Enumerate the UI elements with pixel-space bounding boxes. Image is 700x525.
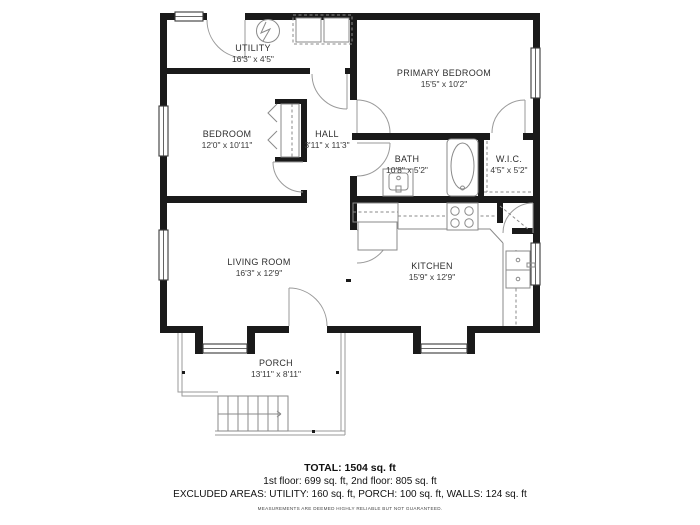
- room-label-porch: PORCH13'11" x 8'11": [251, 358, 301, 380]
- window-living-left: [159, 230, 168, 280]
- floor-areas-text: 1st floor: 699 sq. ft, 2nd floor: 805 sq…: [0, 475, 700, 488]
- room-label-bath: BATH10'8" x 5'2": [386, 154, 428, 176]
- room-dims: 13'11" x 8'11": [251, 369, 301, 380]
- room-label-kitchen: KITCHEN15'9" x 12'9": [409, 261, 456, 283]
- door-primary-bedroom: [357, 100, 390, 133]
- floorplan-page: UTILITY16'3" x 4'5" PRIMARY BEDROOM15'5"…: [0, 0, 700, 525]
- door-front-entry: [289, 288, 327, 326]
- fridge-icon: [353, 203, 398, 250]
- room-label-hall: HALL3'11" x 11'3": [304, 129, 349, 151]
- window-primary-right: [531, 48, 540, 98]
- room-name: UTILITY: [235, 43, 271, 54]
- room-name: HALL: [315, 129, 339, 140]
- door-wic: [492, 100, 525, 133]
- room-dims: 3'11" x 11'3": [304, 140, 349, 151]
- room-label-utility: UTILITY16'3" x 4'5": [232, 43, 274, 65]
- room-label-wic: W.I.C.4'5" x 5'2": [490, 154, 527, 176]
- excluded-areas-text: EXCLUDED AREAS: UTILITY: 160 sq. ft, POR…: [0, 488, 700, 501]
- room-name: KITCHEN: [411, 261, 453, 272]
- room-name: PRIMARY BEDROOM: [397, 68, 491, 79]
- window-bay-right: [421, 344, 467, 353]
- door-bedroom: [273, 162, 303, 192]
- closet-shelf: [268, 104, 299, 157]
- area-summary: TOTAL: 1504 sq. ft 1st floor: 699 sq. ft…: [0, 462, 700, 511]
- window-utility-top: [175, 12, 203, 21]
- room-name: BEDROOM: [203, 129, 252, 140]
- stairs: [218, 396, 288, 431]
- floorplan-drawing: [0, 0, 700, 460]
- room-dims: 10'8" x 5'2": [386, 165, 428, 176]
- room-name: BATH: [395, 154, 420, 165]
- room-label-living-room: LIVING ROOM16'3" x 12'9": [227, 257, 290, 279]
- stove-icon: [447, 203, 478, 230]
- room-name: PORCH: [259, 358, 293, 369]
- room-dims: 15'9" x 12'9": [409, 272, 456, 283]
- room-dims: 16'3" x 12'9": [236, 268, 283, 279]
- window-bedroom-left: [159, 106, 168, 156]
- disclaimer-text: MEASUREMENTS ARE DEEMED HIGHLY RELIABLE …: [0, 506, 700, 511]
- bathtub-icon: [447, 139, 478, 196]
- room-label-primary-bedroom: PRIMARY BEDROOM15'5" x 10'2": [397, 68, 491, 90]
- room-dims: 12'0" x 10'11": [202, 140, 253, 151]
- room-label-bedroom: BEDROOM12'0" x 10'11": [202, 129, 253, 151]
- room-dims: 15'5" x 10'2": [421, 79, 468, 90]
- water-heater-icon: [257, 20, 280, 43]
- room-name: W.I.C.: [496, 154, 522, 165]
- doors: [207, 20, 533, 326]
- room-dims: 16'3" x 4'5": [232, 54, 274, 65]
- door-utility-hall: [312, 74, 347, 109]
- room-name: LIVING ROOM: [227, 257, 290, 268]
- total-area-text: TOTAL: 1504 sq. ft: [0, 462, 700, 475]
- room-dims: 4'5" x 5'2": [490, 165, 527, 176]
- window-bay-left: [203, 344, 247, 353]
